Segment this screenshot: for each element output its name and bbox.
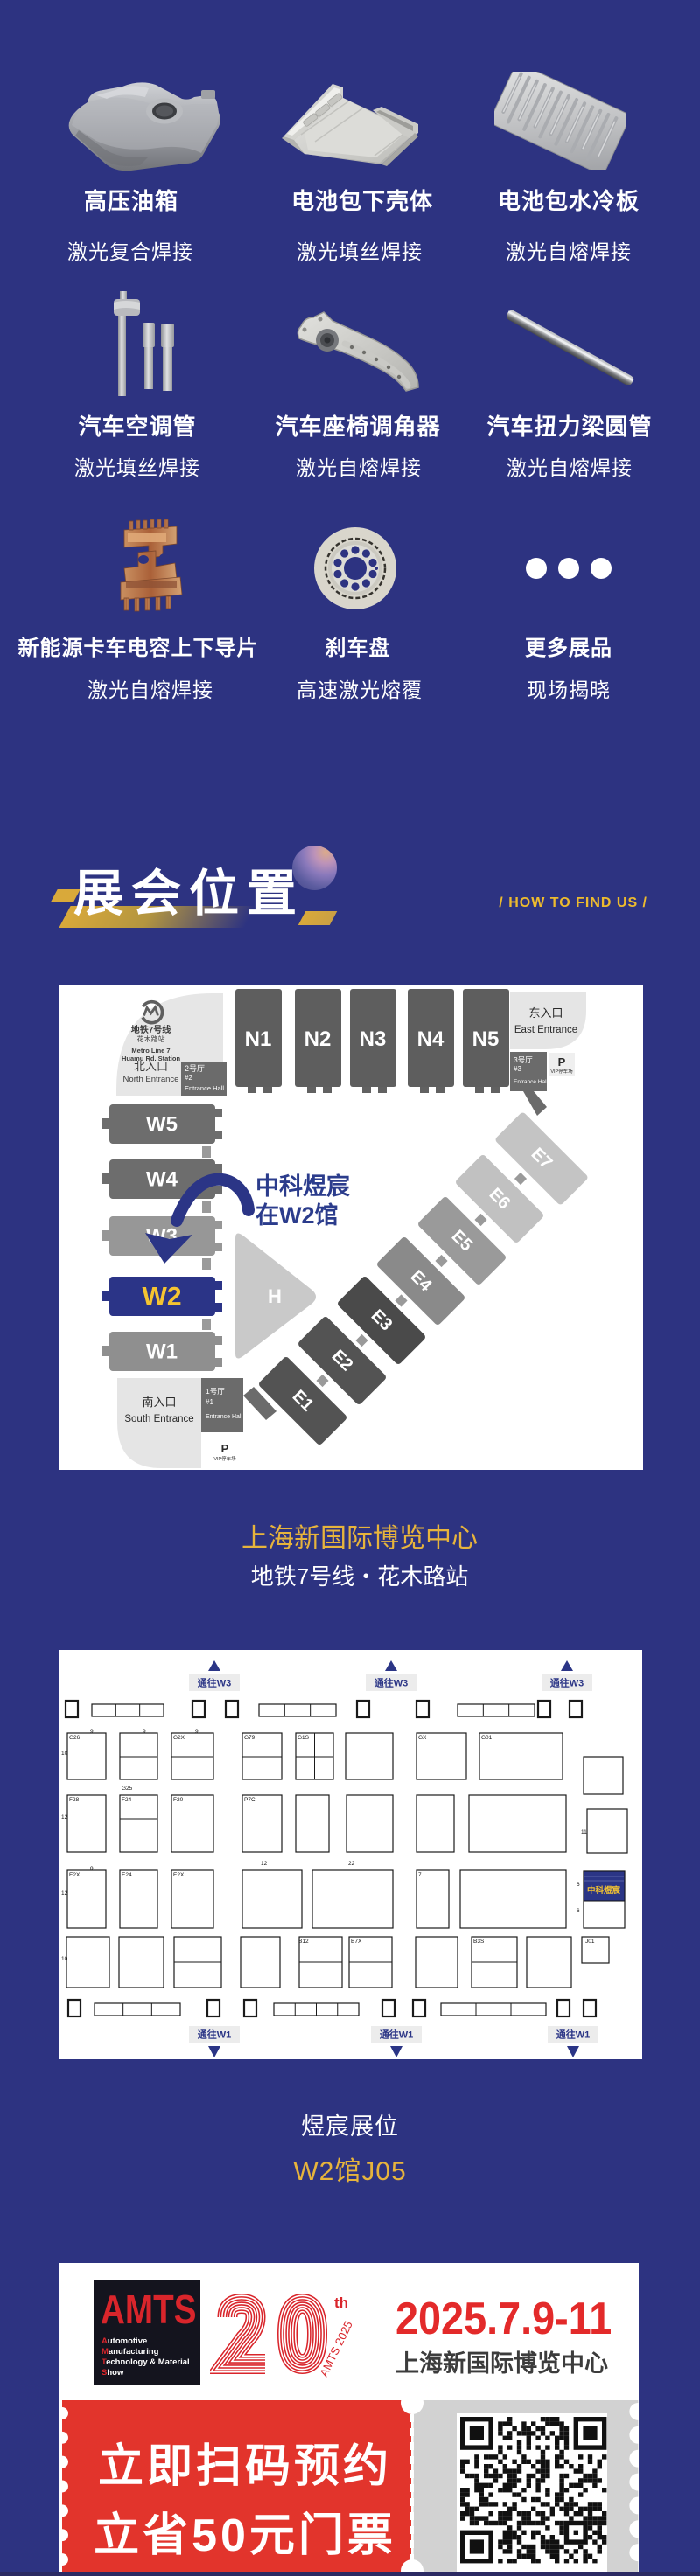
svg-text:10: 10 (61, 1956, 68, 1962)
svg-text:在W2馆: 在W2馆 (255, 1201, 339, 1229)
svg-text:9: 9 (143, 1729, 146, 1735)
svg-text:G01: G01 (481, 1735, 493, 1741)
svg-text:G25: G25 (122, 1786, 133, 1792)
svg-text:F28: F28 (69, 1797, 80, 1803)
svg-text:#2: #2 (185, 1074, 192, 1082)
svg-text:East Entrance: East Entrance (514, 1025, 577, 1035)
svg-text:G2X: G2X (173, 1735, 185, 1741)
svg-text:N1: N1 (245, 1027, 272, 1051)
svg-text:中科煜宸: 中科煜宸 (587, 1885, 621, 1896)
svg-text:Metro Line 7: Metro Line 7 (131, 1047, 170, 1055)
svg-text:F20: F20 (173, 1797, 184, 1803)
svg-text:地铁7号线: 地铁7号线 (131, 1024, 171, 1035)
svg-text:3号厅: 3号厅 (514, 1055, 533, 1064)
svg-text:P7C: P7C (244, 1797, 255, 1803)
svg-text:VIP停车场: VIP停车场 (550, 1068, 573, 1075)
svg-text:B7X: B7X (351, 1939, 362, 1945)
svg-text:N4: N4 (417, 1027, 444, 1051)
svg-text:#3: #3 (514, 1065, 521, 1073)
svg-text:通往W1: 通往W1 (556, 2029, 591, 2041)
svg-text:North Entrance: North Entrance (123, 1075, 179, 1084)
svg-text:2号厅: 2号厅 (185, 1064, 205, 1073)
svg-text:H: H (268, 1285, 282, 1307)
svg-text:P: P (221, 1442, 229, 1455)
svg-text:J01: J01 (585, 1939, 595, 1945)
svg-text:E2X: E2X (173, 1872, 185, 1878)
svg-text:Entrance Hall: Entrance Hall (514, 1079, 549, 1085)
svg-text:F24: F24 (122, 1797, 132, 1803)
svg-text:G26: G26 (69, 1735, 80, 1741)
svg-text:12: 12 (261, 1861, 268, 1867)
svg-text:中科煜宸: 中科煜宸 (255, 1173, 351, 1200)
svg-text:南入口: 南入口 (142, 1396, 176, 1409)
svg-text:Entrance Hall: Entrance Hall (185, 1084, 224, 1092)
svg-text:E24: E24 (122, 1872, 132, 1878)
svg-text:9: 9 (90, 1729, 94, 1735)
svg-text:W1: W1 (146, 1340, 178, 1364)
svg-text:G79: G79 (244, 1735, 255, 1741)
svg-text:22: 22 (348, 1861, 355, 1867)
svg-text:South Entrance: South Entrance (124, 1414, 193, 1424)
svg-text:B3S: B3S (473, 1939, 485, 1945)
svg-text:Entrance Hall: Entrance Hall (206, 1414, 242, 1420)
svg-text:11: 11 (581, 1829, 587, 1835)
svg-text:N5: N5 (472, 1027, 500, 1051)
svg-text:通往W3: 通往W3 (550, 1677, 584, 1689)
svg-text:6: 6 (577, 1882, 580, 1888)
svg-text:VIP停车场: VIP停车场 (213, 1455, 236, 1462)
svg-text:花木路站: 花木路站 (137, 1034, 165, 1043)
svg-text:通往W3: 通往W3 (198, 1677, 232, 1689)
svg-text:W2: W2 (143, 1283, 182, 1312)
svg-text:通往W3: 通往W3 (374, 1677, 409, 1689)
svg-text:北入口: 北入口 (134, 1060, 168, 1073)
svg-text:通往W1: 通往W1 (380, 2029, 414, 2041)
svg-text:12: 12 (61, 1814, 68, 1821)
svg-text:G1S: G1S (297, 1735, 310, 1741)
svg-text:P: P (558, 1055, 566, 1069)
svg-text:W4: W4 (146, 1168, 178, 1192)
svg-text:东入口: 东入口 (528, 1006, 563, 1020)
svg-text:#1: #1 (206, 1398, 213, 1406)
svg-text:12: 12 (61, 1890, 68, 1897)
svg-text:th: th (334, 2294, 348, 2311)
svg-text:10: 10 (61, 1751, 68, 1757)
svg-text:E2X: E2X (69, 1872, 80, 1878)
svg-text:6: 6 (577, 1908, 580, 1914)
svg-text:通往W1: 通往W1 (198, 2029, 232, 2041)
svg-text:B12: B12 (298, 1939, 309, 1945)
svg-text:N2: N2 (304, 1027, 332, 1051)
svg-text:9: 9 (90, 1866, 94, 1872)
svg-text:GX: GX (418, 1735, 427, 1741)
svg-text:7: 7 (418, 1872, 422, 1878)
svg-text:N3: N3 (360, 1027, 387, 1051)
svg-text:W5: W5 (146, 1113, 178, 1137)
svg-text:1号厅: 1号厅 (206, 1387, 225, 1396)
svg-text:9: 9 (195, 1729, 199, 1735)
